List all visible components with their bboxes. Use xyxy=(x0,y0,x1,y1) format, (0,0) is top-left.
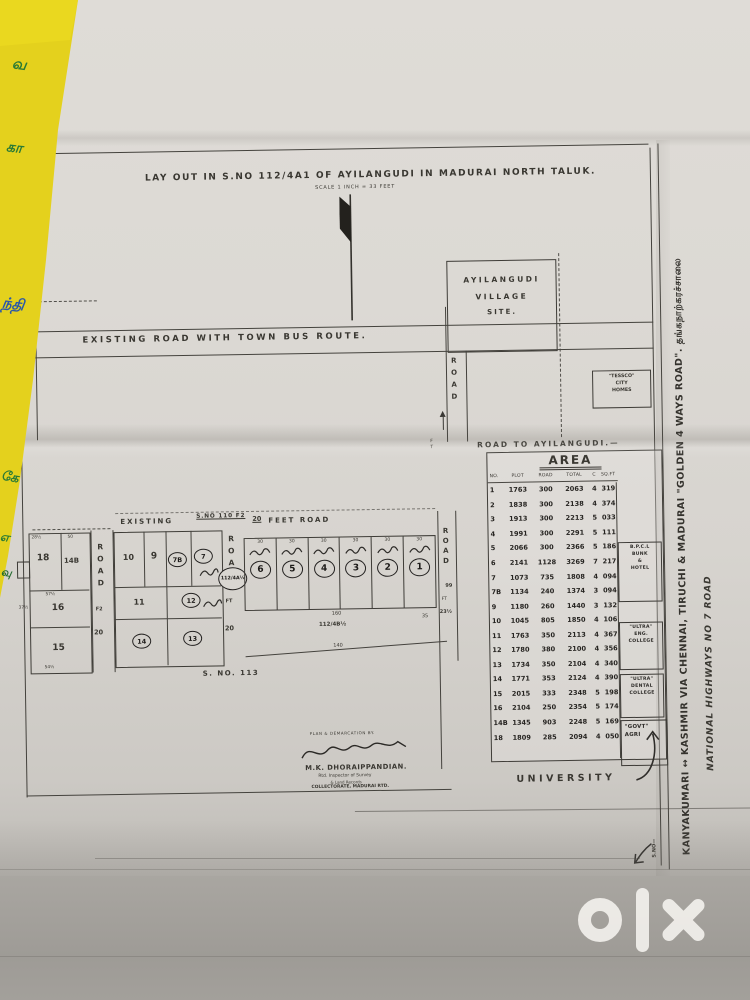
row-cents: 5 xyxy=(590,528,599,536)
village-site-line1: AYILANGUDI xyxy=(447,274,555,285)
row-road: 350 xyxy=(535,631,561,639)
row-total: 1850 xyxy=(561,616,592,624)
hdr-sq: SQ.FT xyxy=(599,472,618,477)
dim-37h: 37½ xyxy=(19,605,29,610)
tessco-line3: HOMES xyxy=(593,388,650,394)
hdr-total: TOTAL xyxy=(559,473,590,478)
row-cents: 5 xyxy=(593,703,602,711)
corridor-right-line xyxy=(466,351,469,442)
row-total: 2138 xyxy=(559,499,590,507)
signature-name: M.K. DHORAIPPANDIAN. xyxy=(305,763,407,773)
photo-of-layout-plan: { "plan": { "title": "LAY OUT IN S.NO 11… xyxy=(0,0,750,1000)
dim-28h: 28½ xyxy=(32,535,42,540)
parcel-112-4B: 112/4B½ xyxy=(319,621,346,627)
plot-11: 11 xyxy=(134,598,145,607)
row-plot: 1180 xyxy=(505,602,535,610)
plot-number-circle: 3 xyxy=(345,559,366,577)
row-plot: 1771 xyxy=(506,675,536,683)
row-road: 285 xyxy=(537,733,563,741)
feet-road-dash-left xyxy=(32,528,110,530)
row-no: 1 xyxy=(490,486,503,494)
tamil-glyph: கே xyxy=(0,469,20,488)
row-cents: 4 xyxy=(594,732,603,740)
road-arrow-icon xyxy=(12,339,19,345)
plot-number-circle: 4 xyxy=(313,560,334,578)
note-line: COLLEGE xyxy=(620,638,662,646)
small-parcel-box xyxy=(17,561,30,578)
row-plot: 2015 xyxy=(506,689,536,697)
row-road: 300 xyxy=(533,485,559,493)
plot-width-dim: 30 xyxy=(416,537,422,542)
row-road: 240 xyxy=(534,587,560,595)
row-road: 300 xyxy=(533,500,559,508)
feet-road-existing: EXISTING xyxy=(120,517,173,526)
dashed-boundary xyxy=(558,253,562,437)
plot-9: 9 xyxy=(151,551,157,561)
row-road: 260 xyxy=(535,602,561,610)
row-no: 14B xyxy=(493,719,506,727)
row-plot: 1073 xyxy=(504,573,534,581)
plan-border-top xyxy=(33,144,649,155)
row-plot: 1045 xyxy=(505,617,535,625)
squiggle-mark xyxy=(345,545,367,555)
squiggle-mark xyxy=(203,597,223,609)
row-road: 805 xyxy=(535,616,561,624)
row-no: 4 xyxy=(490,530,503,538)
feet-road-20: 20 xyxy=(252,515,261,523)
row-plot: 1780 xyxy=(505,646,535,654)
front-plot-cell: 30 2 xyxy=(371,537,404,608)
hdr-no: NO. xyxy=(490,474,503,479)
road1-word: ROAD xyxy=(96,542,106,602)
bus-road-label: EXISTING ROAD WITH TOWN BUS ROUTE. xyxy=(82,331,367,345)
front-plot-cell: 30 5 xyxy=(275,538,308,609)
dim-35: 35 xyxy=(422,613,428,619)
sno-113-label: S. NO. 113 xyxy=(203,669,260,678)
plan-border-bottom xyxy=(27,789,452,797)
plot-number-circle: 2 xyxy=(377,559,398,577)
squiggle-mark xyxy=(281,546,303,556)
row-cents: 4 xyxy=(590,499,599,507)
row-cents: 4 xyxy=(592,645,601,653)
university-label: UNIVERSITY xyxy=(516,772,615,785)
row-total: 2348 xyxy=(562,689,593,697)
row-total: 2366 xyxy=(560,543,591,551)
row-no: 7 xyxy=(491,574,504,582)
row-road: 380 xyxy=(535,645,561,653)
south-boundary-line xyxy=(246,641,448,658)
tessco-box: "TESSCO" CITY HOMES xyxy=(592,370,652,409)
area-table-title: AREA xyxy=(539,452,601,470)
row-plot: 1809 xyxy=(507,733,537,741)
row-total: 2113 xyxy=(561,630,592,638)
row-no: 10 xyxy=(492,617,505,625)
road3-99: 99 xyxy=(445,583,452,589)
dashed-mark xyxy=(39,300,97,302)
plot-width-dim: 30 xyxy=(257,540,263,545)
row-plot: 2066 xyxy=(504,544,534,552)
row-no: 14 xyxy=(493,675,506,683)
hdr-plot: PLOT xyxy=(503,474,533,479)
tamil-glyph: ந்தி xyxy=(1,294,25,317)
dim-160: 160 xyxy=(332,611,342,617)
plot-width-dim: 30 xyxy=(321,539,327,544)
highway-label-line1: KANYAKUMARI ↔ KASHMIR VIA CHENNAI, TIRUC… xyxy=(670,145,693,855)
squiggle-mark xyxy=(408,544,430,554)
road3-width: 23½ xyxy=(440,609,452,615)
row-plot: 1763 xyxy=(503,486,533,494)
row-road: 300 xyxy=(533,529,559,537)
row-no: 16 xyxy=(493,704,506,712)
row-plot: 1763 xyxy=(505,631,535,639)
squiggle-mark xyxy=(249,547,271,557)
row-plot: 1734 xyxy=(506,660,536,668)
tamil-glyph: வ xyxy=(11,54,28,76)
row-total: 1374 xyxy=(560,587,591,595)
feet-road-dash xyxy=(115,508,435,514)
squiggle-mark xyxy=(313,546,335,556)
plan-title: LAY OUT IN S.NO 112/4A1 OF AYILANGUDI IN… xyxy=(145,167,565,184)
note-line: COLLEGE xyxy=(621,690,663,698)
row-no: 3 xyxy=(490,515,503,523)
signature-line1: Rtd. Inspector of Survey xyxy=(318,773,371,779)
corridor-up-arrow-icon xyxy=(440,411,446,430)
row-road: 350 xyxy=(536,660,562,668)
row-road: 300 xyxy=(533,514,559,522)
row-no: 15 xyxy=(493,690,506,698)
signature-scribble xyxy=(298,736,410,764)
row-plot: 1838 xyxy=(503,500,533,508)
row-total: 2248 xyxy=(562,718,593,726)
row-road: 1128 xyxy=(534,558,560,566)
note-ultra-dental: "ULTRA" DENTAL COLLEGE xyxy=(620,673,665,718)
row-no: 5 xyxy=(491,544,504,552)
row-cents: 4 xyxy=(592,616,601,624)
plot-10: 10 xyxy=(123,553,134,562)
plan-border-left-upper xyxy=(33,153,39,440)
row-cents: 4 xyxy=(593,659,602,667)
road2-num: 20 xyxy=(225,624,234,632)
feet-road-sno: S.NO 110 F2 xyxy=(196,513,245,520)
layout-plan-drawing: LAY OUT IN S.NO 112/4A1 OF AYILANGUDI IN… xyxy=(0,0,750,1000)
row-cents: 3 xyxy=(592,601,601,609)
plot-width-dim: 30 xyxy=(353,538,359,543)
squiggle-mark xyxy=(199,566,219,578)
row-no: 7B xyxy=(491,588,504,596)
row-no: 6 xyxy=(491,559,504,567)
plot-number-circle: 5 xyxy=(282,560,303,578)
tamil-glyph: வு xyxy=(0,565,13,582)
plot-16: 16 xyxy=(52,603,65,613)
row-plot: 1345 xyxy=(506,719,536,727)
plot-number-circle: 1 xyxy=(409,558,430,576)
row-total: 2291 xyxy=(559,529,590,537)
hdr-road: ROAD xyxy=(533,473,559,478)
tamil-glyph: கா xyxy=(5,139,23,159)
front-plot-cell: 30 6 xyxy=(245,539,277,610)
row-no: 11 xyxy=(492,632,505,640)
row-cents: 5 xyxy=(593,717,602,725)
row-road: 300 xyxy=(534,544,560,552)
road3-right-line xyxy=(455,511,459,661)
row-road: 735 xyxy=(534,573,560,581)
bus-road-bottom-line xyxy=(12,348,654,359)
row-road: 903 xyxy=(536,718,562,726)
row-total: 1808 xyxy=(560,572,591,580)
row-total: 2213 xyxy=(559,514,590,522)
plot-14B: 14B xyxy=(64,557,79,565)
road-to-ayilangudi-label: ROAD TO AYILANGUDI.— xyxy=(477,438,620,449)
plot-18: 18 xyxy=(37,553,50,563)
university-arrow-icon xyxy=(632,728,661,782)
row-total: 2063 xyxy=(559,485,590,493)
row-cents: 4 xyxy=(592,630,601,638)
row-cents: 5 xyxy=(591,543,600,551)
road1-unit: F2 xyxy=(96,606,103,612)
road3-word: ROAD xyxy=(441,527,450,579)
north-arrow-icon xyxy=(339,190,361,325)
row-no: 9 xyxy=(492,603,505,611)
row-no: 2 xyxy=(490,501,503,509)
plot-width-dim: 30 xyxy=(384,538,390,543)
tessco-line1: "TESSCO" xyxy=(593,374,650,380)
feet-road-word: FEET ROAD xyxy=(268,516,330,525)
row-plot: 2141 xyxy=(504,559,534,567)
row-plot: 1991 xyxy=(503,529,533,537)
road3-ft: FT xyxy=(442,597,447,602)
plot-number-circle: 6 xyxy=(250,561,271,579)
row-total: 3269 xyxy=(560,558,591,566)
dim-50: 50 xyxy=(68,535,74,540)
front-plot-row: 30 6 30 5 30 4 30 3 30 xyxy=(244,535,437,611)
row-cents: 5 xyxy=(590,514,599,522)
row-total: 1440 xyxy=(561,601,592,609)
plot-15: 15 xyxy=(52,643,65,653)
note-ultra-eng: "ULTRA" ENG. COLLEGE xyxy=(619,621,664,670)
village-site-box: AYILANGUDI VILLAGE SITE. xyxy=(446,259,557,353)
row-cents: 4 xyxy=(591,572,600,580)
hdr-c: C xyxy=(590,472,599,477)
signature-heading: PLAN & DEMARCATION BY. xyxy=(310,730,375,736)
corner-arrow-icon xyxy=(631,842,653,866)
corridor-ft-label: FT xyxy=(429,439,434,451)
dim-57h: 57½ xyxy=(45,592,55,597)
parcel-112-4A-circle: 112/4A½ xyxy=(218,567,247,590)
row-plot: 1913 xyxy=(503,515,533,523)
front-plot-cell: 30 4 xyxy=(307,538,340,609)
plan-border-left-lower xyxy=(21,458,28,798)
road1-num: 20 xyxy=(94,628,103,636)
squiggle-mark xyxy=(376,545,398,555)
row-cents: 7 xyxy=(591,557,600,565)
row-total: 2094 xyxy=(563,732,594,740)
row-plot: 2104 xyxy=(506,704,536,712)
row-cents: 5 xyxy=(593,688,602,696)
row-no: 13 xyxy=(493,661,506,669)
front-plot-cell: 30 3 xyxy=(339,537,372,608)
row-total: 2100 xyxy=(561,645,592,653)
row-total: 2354 xyxy=(562,703,593,711)
row-plot: 1134 xyxy=(504,588,534,596)
village-site-line3: SITE. xyxy=(448,307,556,317)
dim-140: 140 xyxy=(333,643,343,649)
highway-label-line2: NATIONAL HIGHWAYS NO 7 ROAD xyxy=(701,465,716,771)
corridor-road-label: ROAD xyxy=(450,357,459,429)
front-plot-cell: 30 1 xyxy=(403,536,436,607)
row-no: 12 xyxy=(492,646,505,654)
note-bpcl: B.P.C.L BUNK & HOTEL xyxy=(618,542,663,603)
row-road: 353 xyxy=(536,674,562,682)
plot-width-dim: 30 xyxy=(289,539,295,544)
road2-unit: FT xyxy=(226,598,233,604)
row-no: 18 xyxy=(494,734,507,742)
note-line: HOTEL xyxy=(619,565,661,573)
row-cents: 4 xyxy=(590,485,599,493)
row-cents: 3 xyxy=(591,587,600,595)
row-cents: 4 xyxy=(593,674,602,682)
tessco-line2: CITY xyxy=(593,381,650,387)
row-road: 333 xyxy=(536,689,562,697)
dim-54h: 54½ xyxy=(45,665,55,670)
row-total: 2124 xyxy=(562,674,593,682)
row-total: 2104 xyxy=(562,659,593,667)
row-road: 250 xyxy=(536,704,562,712)
village-site-line2: VILLAGE xyxy=(448,291,556,302)
